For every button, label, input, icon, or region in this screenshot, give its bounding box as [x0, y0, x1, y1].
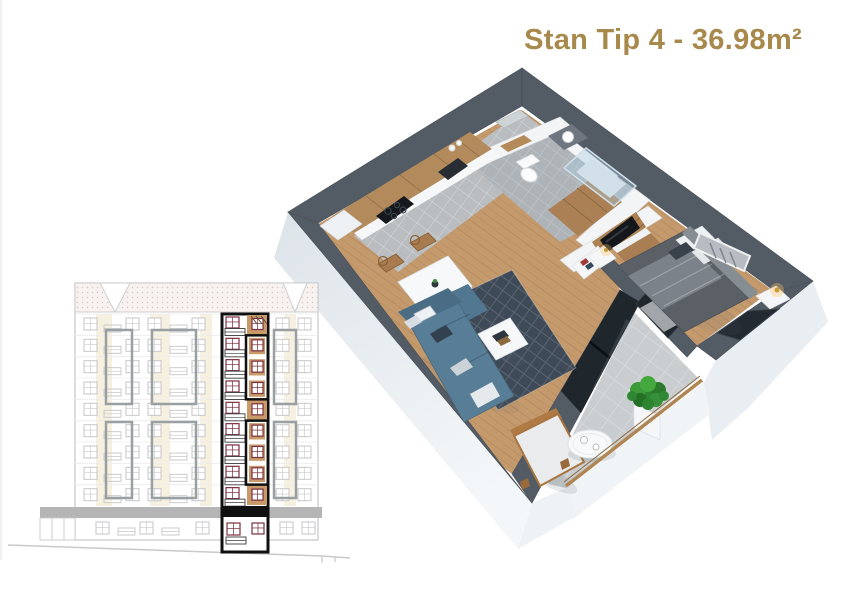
- kitchen-jar: [449, 145, 455, 151]
- cup: [581, 437, 588, 444]
- ground-annex: [40, 518, 75, 540]
- bedside-lamp: [604, 248, 608, 252]
- cup: [593, 444, 599, 450]
- plan-title: Stan Tip 4 - 36.98m²: [524, 24, 802, 57]
- kitchen-jar: [457, 141, 462, 146]
- scene-canvas: [0, 0, 842, 595]
- bedside-lamp: [775, 288, 780, 293]
- ground-line: [8, 545, 350, 558]
- building-elevation: [8, 283, 350, 563]
- canopy-slab: [40, 507, 322, 518]
- centerpiece-plant: [433, 279, 437, 283]
- vanity-sink: [563, 132, 574, 143]
- apartment-type-page: Stan Tip 4 - 36.98m²: [0, 0, 842, 595]
- apartment-3d-render: [274, 68, 828, 549]
